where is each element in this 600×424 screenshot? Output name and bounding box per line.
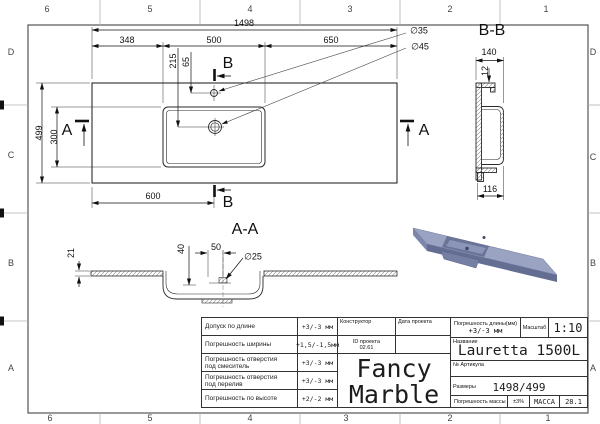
- dim-right-offset: 650: [323, 35, 338, 45]
- dim-basin-depth: 300: [49, 129, 59, 144]
- mass-label-cell: МАССА: [529, 395, 560, 408]
- section-marks: [75, 69, 414, 197]
- bb-dim-rim: 12: [480, 66, 490, 76]
- basin-inner-outline: [167, 111, 262, 164]
- section-aa-view: [75, 246, 397, 307]
- tolerance-label2: под смеситель: [205, 363, 297, 370]
- size-label: Размеры: [453, 384, 476, 390]
- zone-row-right: A: [590, 363, 596, 373]
- zone-row-left: A: [8, 363, 14, 373]
- project-id-cell: ID проекта 02.61: [337, 335, 396, 354]
- brand-line1: Fancy: [338, 356, 450, 382]
- zone-row-left: C: [8, 150, 15, 160]
- render-drain-hole: [465, 247, 469, 251]
- zone-col-bottom: 5: [147, 413, 152, 423]
- aa-dia-drain: ∅25: [244, 252, 262, 263]
- project-date-cell: Дата проекта: [395, 317, 451, 336]
- mass-tolerance-value-cell: ±3%: [507, 395, 530, 408]
- drain-hole: [206, 118, 224, 136]
- aa-deck-right: [264, 271, 397, 276]
- section-aa-title: A-A: [232, 221, 259, 239]
- section-b-letter: B: [223, 55, 234, 73]
- bb-basin-inner: [482, 110, 501, 160]
- sink-3d-render: [413, 228, 557, 282]
- extension-lines: [36, 27, 397, 208]
- zone-col-top: 5: [147, 4, 152, 14]
- zone-col-bottom: 1: [545, 413, 550, 423]
- aa-extension-lines: [75, 250, 223, 285]
- project-id-value: 02.61: [338, 345, 395, 351]
- dia-faucet-label: ∅35: [410, 26, 428, 37]
- zone-col-bottom: 6: [47, 413, 52, 423]
- bb-wall-hatch: [500, 112, 504, 158]
- bb-dim-width: 140: [481, 47, 496, 57]
- zone-row-right: D: [590, 47, 597, 57]
- zone-row-left: D: [8, 47, 15, 57]
- sku-cell: № Артикула: [450, 360, 588, 377]
- mass-value-cell: 28.1: [559, 395, 588, 408]
- tolerance-label-cell: Погрешность отверстияпод перелив: [201, 371, 298, 390]
- dimension-lines: [42, 30, 397, 203]
- section-bb-title: B-B: [479, 22, 506, 40]
- tolerance-label-cell: Погрешность по высоте: [201, 389, 298, 408]
- mass-tolerance-label-cell: Погрешность массы: [450, 395, 508, 408]
- section-bb-view: [476, 57, 504, 200]
- zone-col-top: 3: [347, 4, 352, 14]
- section-a-letter: A: [419, 122, 430, 140]
- drawing-sheet: 6 5 4 3 2 1 6 5 4 3 2 1 D C B A D C B A …: [0, 0, 600, 424]
- length-tolerance-cell: Погрешность длины(мм) +3/-3 мм: [450, 317, 521, 338]
- section-a-letter: A: [62, 122, 73, 140]
- tolerance-value-cell: +3/-3 мм: [297, 317, 338, 336]
- dim-total-depth: 499: [34, 125, 44, 140]
- dim-total-length: 1498: [234, 18, 254, 28]
- scale-label-cell: Масштаб: [520, 317, 549, 338]
- constructor-cell: Конструктор: [337, 317, 396, 336]
- zone-row-right: B: [590, 258, 596, 268]
- tolerance-label: Погрешность отверстия: [205, 374, 297, 381]
- brand-line2: Marble: [338, 382, 450, 408]
- dim-215: 215: [168, 53, 178, 68]
- bb-dim-bottom: 116: [483, 184, 497, 194]
- tolerance-label: Допуск по длине: [205, 323, 297, 330]
- tolerance-label-cell: Погрешность ширины: [201, 335, 298, 354]
- tolerance-label: Погрешность ширины: [205, 341, 297, 348]
- empty-cell: [395, 335, 451, 354]
- countertop-outline: [92, 83, 397, 183]
- zone-col-bottom: 4: [247, 413, 252, 423]
- size-cell: Размеры 1498/499: [450, 376, 588, 396]
- zone-col-top: 4: [247, 4, 252, 14]
- zone-col-top: 6: [44, 4, 49, 14]
- product-name: Lauretta 1500L: [451, 343, 587, 359]
- tolerance-value-cell: +1,5/-1,5мм: [297, 335, 338, 354]
- zone-col-top: 2: [447, 4, 452, 14]
- dim-drain-from-left: 600: [145, 191, 160, 201]
- tolerance-label-cell: Допуск по длине: [201, 317, 298, 336]
- zone-row-left: B: [8, 258, 14, 268]
- aa-drain-boss: [202, 299, 232, 303]
- tolerance-label: Погрешность отверстия: [205, 356, 297, 363]
- aa-deck-left: [91, 271, 163, 276]
- aa-bowl-outer: [163, 276, 263, 299]
- name-cell: Название Lauretta 1500L: [450, 337, 588, 361]
- dim-65: 65: [181, 57, 191, 67]
- tolerance-label-cell: Погрешность отверстияпод смеситель: [201, 353, 298, 372]
- aa-dim-depth: 40: [176, 244, 186, 254]
- fold-marks: [0, 101, 4, 326]
- zone-col-bottom: 2: [447, 413, 452, 423]
- zone-col-bottom: 3: [343, 413, 348, 423]
- dim-basin-width: 500: [206, 35, 221, 45]
- tolerance-value-cell: +3/-3 мм: [297, 371, 338, 390]
- brand-logo: Fancy Marble: [337, 353, 451, 408]
- dia-drain-label: ∅45: [411, 42, 429, 53]
- aa-bowl-inner: [166, 271, 260, 294]
- tolerance-value-cell: +2/-2 мм: [297, 389, 338, 408]
- render-faucet-hole: [483, 236, 486, 239]
- dim-left-offset: 348: [119, 35, 134, 45]
- tolerance-label: Погрешность по высоте: [205, 395, 297, 402]
- faucet-hole: [207, 85, 221, 101]
- scale-value-cell: 1:10: [548, 317, 588, 338]
- tolerance-value-cell: +3/-3 мм: [297, 353, 338, 372]
- bb-profile: [476, 83, 497, 182]
- zone-row-right: C: [590, 152, 597, 162]
- aa-dimension-lines: [79, 246, 243, 287]
- length-tolerance-value: +3/-3 мм: [451, 327, 520, 334]
- aa-dim-thickness: 21: [66, 248, 76, 258]
- zone-col-top: 1: [543, 4, 548, 14]
- aa-dim-offset: 50: [211, 242, 221, 252]
- tolerance-label2: под перелив: [205, 381, 297, 388]
- section-b-letter: B: [223, 194, 234, 212]
